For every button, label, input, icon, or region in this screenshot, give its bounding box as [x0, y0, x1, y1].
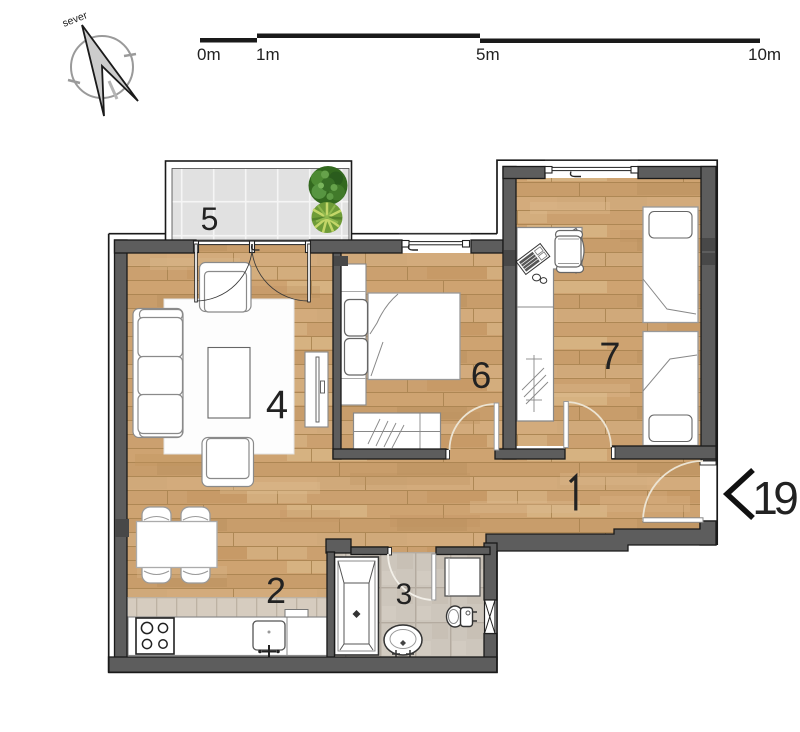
svg-text:1m: 1m	[256, 45, 280, 64]
svg-text:0m: 0m	[197, 45, 221, 64]
svg-text:2: 2	[266, 570, 286, 611]
svg-text:5: 5	[201, 201, 219, 237]
svg-text:10m: 10m	[748, 45, 781, 64]
svg-text:3: 3	[396, 578, 413, 611]
svg-text:6: 6	[471, 355, 492, 396]
svg-text:7: 7	[599, 336, 620, 378]
svg-text:5m: 5m	[476, 45, 500, 64]
svg-text:4: 4	[266, 383, 288, 427]
svg-text:9: 9	[773, 472, 799, 524]
